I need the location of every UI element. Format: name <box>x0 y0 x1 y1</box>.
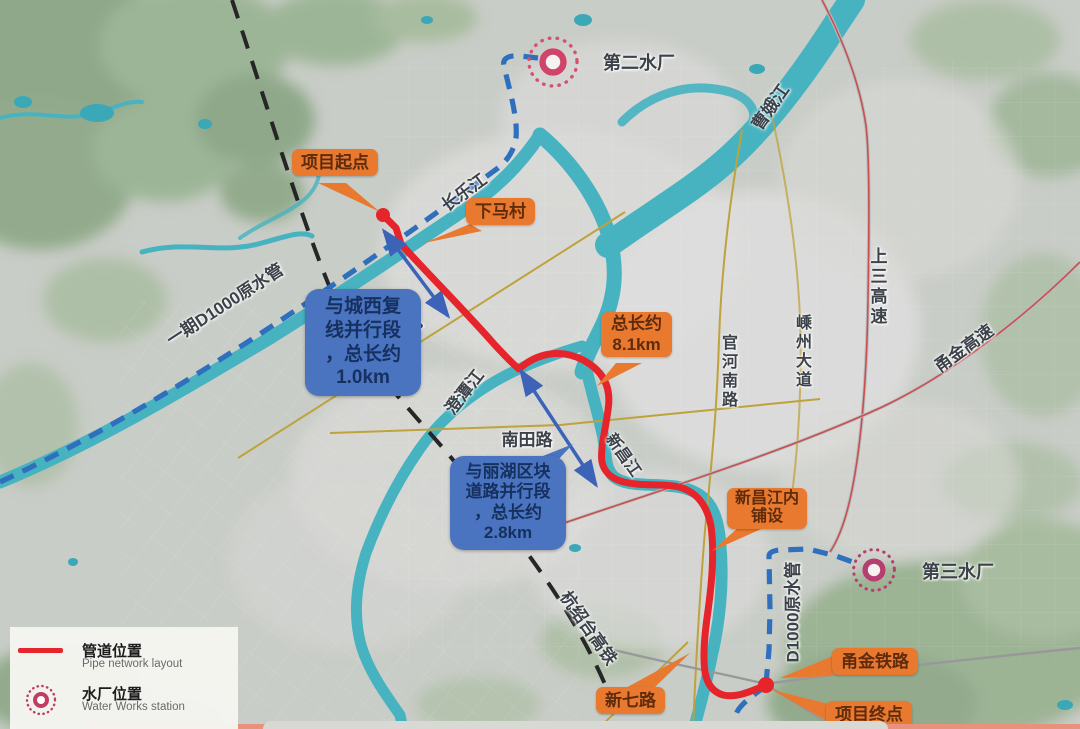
road-label-shangsan-expressway: 上三高速 <box>865 247 890 327</box>
label-water-plant-2: 第二水厂 <box>603 49 675 75</box>
road-label-guanhe-south: 官河南路 <box>715 334 739 410</box>
pipe-label-d1000: D1000原水管 <box>779 561 804 662</box>
road-label-nantian: 南田路 <box>502 426 553 451</box>
callout-xinqi-road: 新七路 <box>596 687 665 714</box>
legend-pipe-en: Pipe network layout <box>82 658 182 670</box>
callout-xinchang-laid: 新昌江内 铺设 <box>727 488 807 529</box>
callout-project-start: 项目起点 <box>292 149 378 176</box>
callout-parallel-west: 与城西复 线并行段 ，总长约 1.0km <box>305 289 421 396</box>
legend-waterworks-en: Water Works station <box>82 701 185 713</box>
callout-parallel-lihu: 与丽湖区块 道路并行段 ，总长约 2.8km <box>450 456 566 550</box>
callout-total-length: 总长约 8.1km <box>601 312 672 357</box>
callout-yongjin-railway: 甬金铁路 <box>832 648 918 675</box>
project-start-dot <box>376 208 390 222</box>
map-canvas: 长乐江 曹娥江 一期D1000原水管 嵊义线 澄潭江 南田路 新昌江 官河南路 … <box>0 0 1080 729</box>
waterworks-legend-icon <box>24 683 58 717</box>
road-label-shengzhou-avenue: 嵊州大道 <box>789 314 813 390</box>
pipe-line-swatch <box>18 648 63 653</box>
satellite-map <box>0 0 1080 729</box>
callout-xiama-village: 下马村 <box>466 198 535 225</box>
bottom-gray-bar <box>263 721 888 729</box>
label-water-plant-3: 第三水厂 <box>922 558 994 584</box>
map-legend: 管道位置 Pipe network layout 水厂位置 Water Work… <box>10 627 238 729</box>
project-end-dot <box>758 677 774 693</box>
